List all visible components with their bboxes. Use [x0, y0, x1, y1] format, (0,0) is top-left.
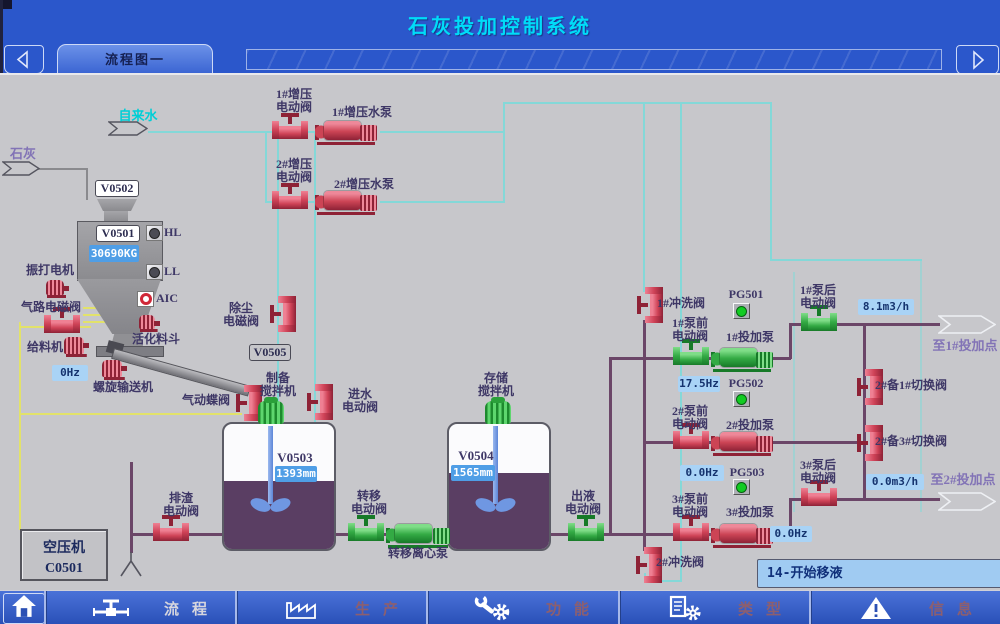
vibrator-motor[interactable]: [45, 278, 69, 298]
feeder-motor[interactable]: [63, 335, 89, 357]
drain-valve[interactable]: [153, 515, 189, 541]
outlet-valve[interactable]: [568, 515, 604, 541]
feeder-label: 给料机: [24, 341, 66, 354]
lime-label: 石灰: [6, 147, 40, 161]
high-level-label: HL: [164, 226, 186, 239]
low-level-label: LL: [164, 265, 186, 278]
v0505-tag: V0505: [249, 344, 291, 361]
dosing3-hz-value: 0.0Hz: [770, 526, 812, 542]
pipe-slurry: [130, 533, 133, 553]
tab-scroll-track[interactable]: [246, 49, 942, 70]
drain-valve-label: 排渣 电动阀: [156, 492, 206, 518]
dosing3-pump-label: 3#投加泵: [722, 506, 778, 519]
flow1-value: 8.1m3/h: [858, 299, 914, 315]
inlet-valve[interactable]: [307, 384, 333, 420]
bottom-nav-bar: 流程 生产 功能 类型 信息: [0, 590, 1000, 624]
transfer-valve[interactable]: [348, 515, 384, 541]
nav-item-function[interactable]: 功能: [426, 591, 617, 624]
tap-water-arrow-icon: [108, 121, 148, 141]
pg502-indicator[interactable]: [733, 391, 750, 407]
nav-label-info: 信息: [929, 598, 985, 619]
prep-mixer-motor[interactable]: [256, 397, 286, 426]
outlet-valve-label: 出液 电动阀: [558, 490, 608, 516]
pg503-indicator[interactable]: [733, 479, 750, 495]
booster1-pump[interactable]: [315, 117, 377, 145]
pipe-slurry: [770, 357, 791, 360]
pipe-slurry: [833, 323, 940, 326]
prep-mixer-label: 制备 搅拌机: [254, 372, 302, 398]
to-point2-arrow-icon: [938, 492, 996, 516]
air-compressor[interactable]: 空压机 C0501: [20, 529, 108, 581]
flush2-label: 2#冲洗阀: [656, 556, 718, 569]
pg503-label: PG503: [725, 466, 769, 479]
pipe-air: [19, 413, 242, 415]
nav-item-flow[interactable]: 流程: [44, 591, 235, 624]
nav-label-function: 功能: [546, 598, 602, 619]
dust-valve-label: 除尘 电磁阀: [218, 302, 264, 328]
dosing2-pump[interactable]: [711, 428, 773, 456]
tap-water-label: 自来水: [116, 109, 160, 123]
silo-weight-value: 30690KG: [89, 245, 139, 262]
switch-2to1-label: 2#备1#切换阀: [875, 379, 967, 392]
pipe-water: [770, 102, 772, 261]
pipe-slurry: [609, 357, 675, 360]
pipe-slurry: [130, 462, 133, 536]
high-level-indicator[interactable]: [146, 225, 163, 241]
air-valve-label: 气路电磁阀: [18, 301, 84, 314]
pipe-water: [503, 102, 770, 104]
pipe-water: [503, 102, 505, 203]
silo-dust-collector: [97, 199, 137, 211]
process-diagram-canvas: 自来水 石灰 V0502 V0501 30690KG HL LL AIC 活化料…: [0, 73, 1000, 592]
home-icon: [11, 594, 37, 623]
transfer-pump-label: 转移离心泵: [380, 547, 456, 560]
nav-label-production: 生产: [355, 598, 411, 619]
post1-valve-label: 1#泵后 电动阀: [794, 284, 842, 310]
storage-mixer-motor[interactable]: [483, 397, 513, 426]
pipe-lime: [38, 168, 87, 170]
lime-arrow-icon: [2, 161, 40, 181]
nav-label-flow: 流程: [164, 598, 220, 619]
screw-conveyor-label: 螺旋输送机: [88, 381, 158, 394]
inlet-valve-label: 进水 电动阀: [336, 388, 384, 414]
home-button[interactable]: [3, 593, 45, 624]
low-level-indicator[interactable]: [146, 264, 163, 280]
pipe-slurry: [771, 441, 864, 444]
pipe-water: [643, 102, 645, 292]
wrench-gear-icon: [474, 595, 512, 621]
butterfly-valve-label: 气动蝶阀: [178, 394, 234, 407]
nav-label-type: 类型: [738, 598, 794, 619]
dosing2-pump-label: 2#投加泵: [722, 419, 778, 432]
dosing1-hz-value: 17.5Hz: [678, 376, 720, 392]
pipe-water: [148, 131, 277, 133]
to-point1-label: 至1#投加点: [928, 339, 1000, 353]
pipe-slurry: [609, 358, 612, 535]
page-title: 石灰投加控制系统: [0, 10, 1000, 39]
prep-tank-tag: V0503: [272, 451, 318, 465]
prep-tank-liquid: [224, 481, 334, 549]
to-point2-label: 至2#投加点: [926, 473, 1000, 487]
pipe-air: [19, 322, 21, 530]
pipe-slurry: [643, 320, 646, 551]
transfer-valve-label: 转移 电动阀: [344, 490, 394, 516]
pipe-water: [770, 259, 922, 261]
silo-top-tag: V0502: [95, 180, 139, 197]
status-message: 14-开始移液: [757, 559, 1000, 588]
next-page-button[interactable]: [956, 45, 999, 75]
activation-hopper-label: 活化料斗: [130, 333, 182, 346]
dosing1-pump-label: 1#投加泵: [722, 331, 778, 344]
storage-tank[interactable]: [447, 422, 551, 551]
pipe-water: [380, 201, 503, 203]
silo-tag: V0501: [96, 225, 140, 242]
pipe-water: [380, 131, 503, 133]
nav-item-info[interactable]: 信息: [809, 591, 1000, 624]
dosing2-hz-value: 0.0Hz: [680, 465, 724, 481]
pg501-label: PG501: [724, 288, 768, 301]
activation-hopper-motor[interactable]: [138, 313, 160, 332]
flow2-value: 0.0m3/h: [866, 474, 924, 490]
prep-tank[interactable]: [222, 422, 336, 551]
booster2-valve[interactable]: [272, 183, 308, 209]
document-gear-icon: [666, 595, 704, 621]
dust-solenoid-valve[interactable]: [270, 296, 296, 332]
pre1-valve-label: 1#泵前 电动阀: [665, 317, 715, 343]
tab-flow-diagram-1[interactable]: 流程图一: [57, 44, 213, 74]
storage-mixer-label: 存储 搅拌机: [472, 372, 520, 398]
nav-item-type[interactable]: 类型: [618, 591, 809, 624]
prep-tank-level: 1393mm: [275, 466, 317, 482]
booster1-valve-label: 1#增压 电动阀: [266, 88, 322, 114]
pre2-valve-label: 2#泵前 电动阀: [665, 405, 715, 431]
pg502-label: PG502: [724, 377, 768, 390]
pg501-indicator[interactable]: [733, 303, 750, 319]
dosing1-pump[interactable]: [711, 344, 773, 372]
warning-triangle-icon: [857, 595, 895, 621]
hmi-screen: 石灰投加控制系统 流程图一: [0, 0, 1000, 624]
booster2-pump[interactable]: [315, 187, 377, 215]
booster2-valve-label: 2#增压 电动阀: [266, 158, 322, 184]
switch-2to3-label: 2#备3#切换阀: [875, 435, 967, 448]
booster1-valve[interactable]: [272, 113, 308, 139]
title-bar: 石灰投加控制系统 流程图一: [0, 0, 1000, 73]
nav-item-production[interactable]: 生产: [235, 591, 426, 624]
dosing3-pump[interactable]: [711, 520, 773, 548]
pipe-slurry: [863, 324, 866, 500]
booster1-pump-label: 1#增压水泵: [326, 106, 398, 119]
vibrator-label: 振打电机: [24, 264, 76, 277]
factory-icon: [283, 595, 321, 621]
transfer-pump[interactable]: [386, 520, 450, 548]
storage-tank-tag: V0504: [453, 449, 499, 463]
feeder-hz-value: 0Hz: [52, 365, 88, 381]
pre3-valve-label: 3#泵前 电动阀: [665, 493, 715, 519]
pipe-lime: [86, 168, 88, 200]
pipe-slurry: [789, 324, 792, 359]
screw-conveyor-motor[interactable]: [101, 358, 127, 380]
aic-indicator[interactable]: [137, 291, 154, 307]
post3-valve-label: 3#泵后 电动阀: [794, 459, 842, 485]
storage-tank-level: 1565mm: [451, 465, 495, 481]
drain-outlet-icon: [117, 552, 145, 583]
to-point1-arrow-icon: [938, 315, 996, 339]
prev-page-button[interactable]: [4, 45, 44, 74]
pipeline-icon: [92, 595, 130, 621]
pipe-slurry: [643, 441, 675, 444]
flush1-label: 1#冲洗阀: [657, 297, 719, 310]
booster2-pump-label: 2#增压水泵: [328, 178, 400, 191]
pipe-slurry: [832, 498, 940, 501]
aic-label: AIC: [156, 292, 186, 305]
